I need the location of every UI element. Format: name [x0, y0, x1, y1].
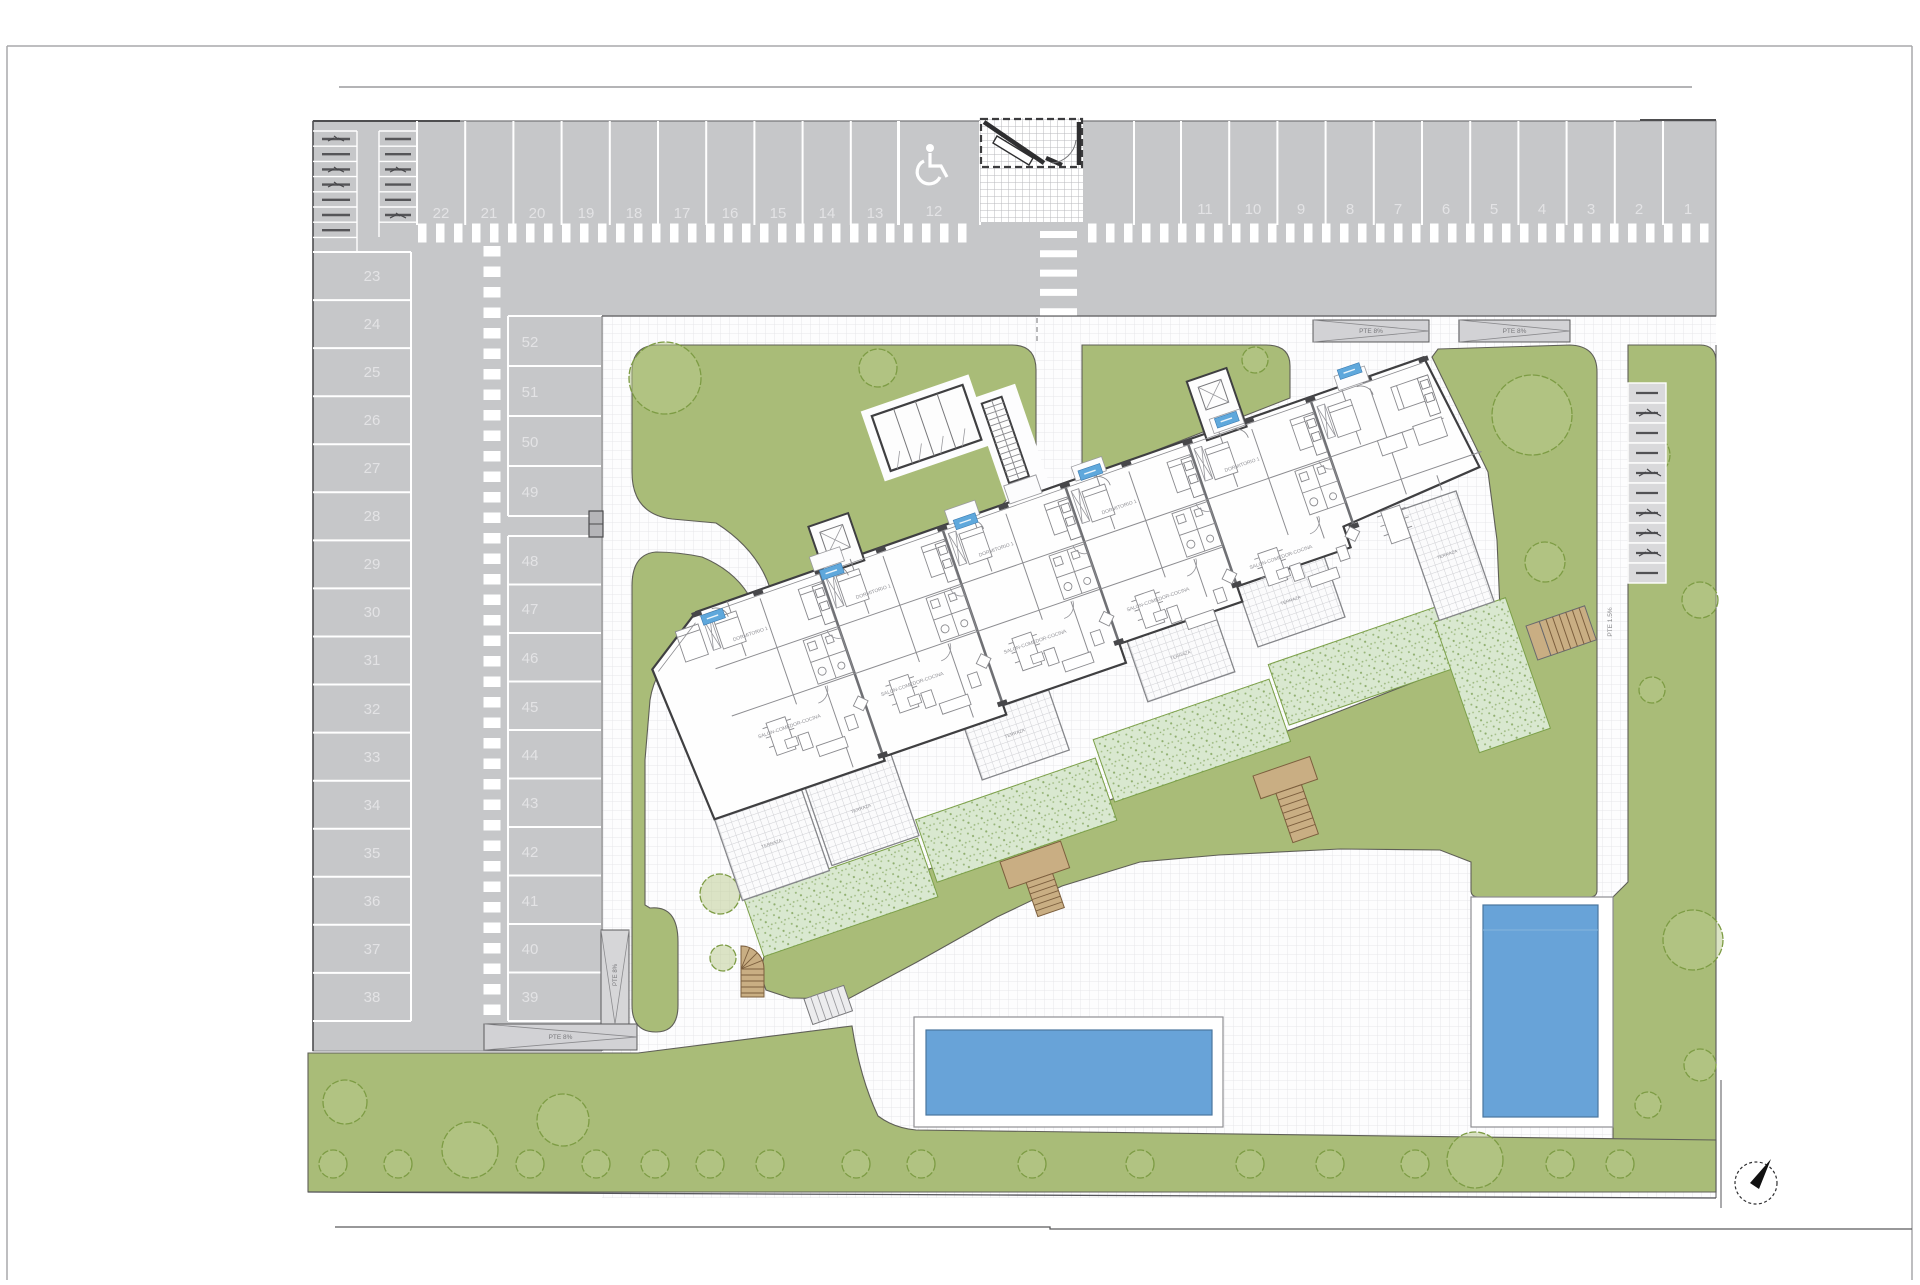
svg-text:24: 24	[364, 316, 381, 333]
svg-text:20: 20	[529, 205, 546, 222]
svg-text:46: 46	[522, 650, 539, 667]
svg-text:40: 40	[522, 941, 539, 958]
svg-text:14: 14	[819, 205, 836, 222]
svg-text:31: 31	[364, 652, 381, 669]
svg-text:51: 51	[522, 384, 539, 401]
svg-text:43: 43	[522, 795, 539, 812]
svg-text:PTE 8%: PTE 8%	[613, 963, 619, 986]
svg-text:50: 50	[522, 434, 539, 451]
svg-text:PTE 8%: PTE 8%	[1359, 328, 1383, 335]
svg-text:39: 39	[522, 989, 539, 1006]
svg-text:44: 44	[522, 747, 539, 764]
svg-text:5: 5	[1490, 201, 1498, 218]
svg-text:34: 34	[364, 797, 381, 814]
svg-text:33: 33	[364, 749, 381, 766]
svg-text:22: 22	[433, 205, 450, 222]
svg-text:13: 13	[867, 205, 884, 222]
svg-text:4: 4	[1538, 201, 1546, 218]
svg-text:36: 36	[364, 893, 381, 910]
svg-text:3: 3	[1587, 201, 1595, 218]
svg-text:32: 32	[364, 701, 381, 718]
svg-text:18: 18	[626, 205, 643, 222]
svg-text:1: 1	[1684, 201, 1692, 218]
svg-text:9: 9	[1297, 201, 1305, 218]
svg-text:42: 42	[522, 844, 539, 861]
svg-text:16: 16	[722, 205, 739, 222]
svg-text:6: 6	[1442, 201, 1450, 218]
svg-text:PTE 1.5%: PTE 1.5%	[1607, 607, 1614, 636]
svg-text:2: 2	[1635, 201, 1643, 218]
svg-text:47: 47	[522, 601, 539, 618]
svg-text:27: 27	[364, 460, 381, 477]
svg-text:19: 19	[578, 205, 595, 222]
svg-text:26: 26	[364, 412, 381, 429]
svg-text:28: 28	[364, 508, 381, 525]
svg-text:15: 15	[770, 205, 787, 222]
svg-text:11: 11	[1197, 201, 1213, 218]
svg-text:10: 10	[1245, 201, 1262, 218]
svg-text:8: 8	[1346, 201, 1354, 218]
svg-text:PTE 8%: PTE 8%	[549, 1034, 573, 1041]
svg-text:48: 48	[522, 553, 539, 570]
svg-text:17: 17	[674, 205, 691, 222]
svg-text:7: 7	[1394, 201, 1402, 218]
svg-text:30: 30	[364, 604, 381, 621]
svg-text:41: 41	[522, 893, 539, 910]
svg-text:PTE 8%: PTE 8%	[1503, 328, 1527, 335]
svg-text:35: 35	[364, 845, 381, 862]
svg-text:38: 38	[364, 989, 381, 1006]
svg-text:21: 21	[481, 205, 498, 222]
svg-text:25: 25	[364, 364, 381, 381]
svg-text:12: 12	[926, 203, 943, 220]
svg-text:23: 23	[364, 268, 381, 285]
svg-text:37: 37	[364, 941, 381, 958]
svg-text:29: 29	[364, 556, 381, 573]
svg-text:52: 52	[522, 334, 539, 351]
svg-text:45: 45	[522, 699, 539, 716]
svg-text:49: 49	[522, 484, 539, 501]
